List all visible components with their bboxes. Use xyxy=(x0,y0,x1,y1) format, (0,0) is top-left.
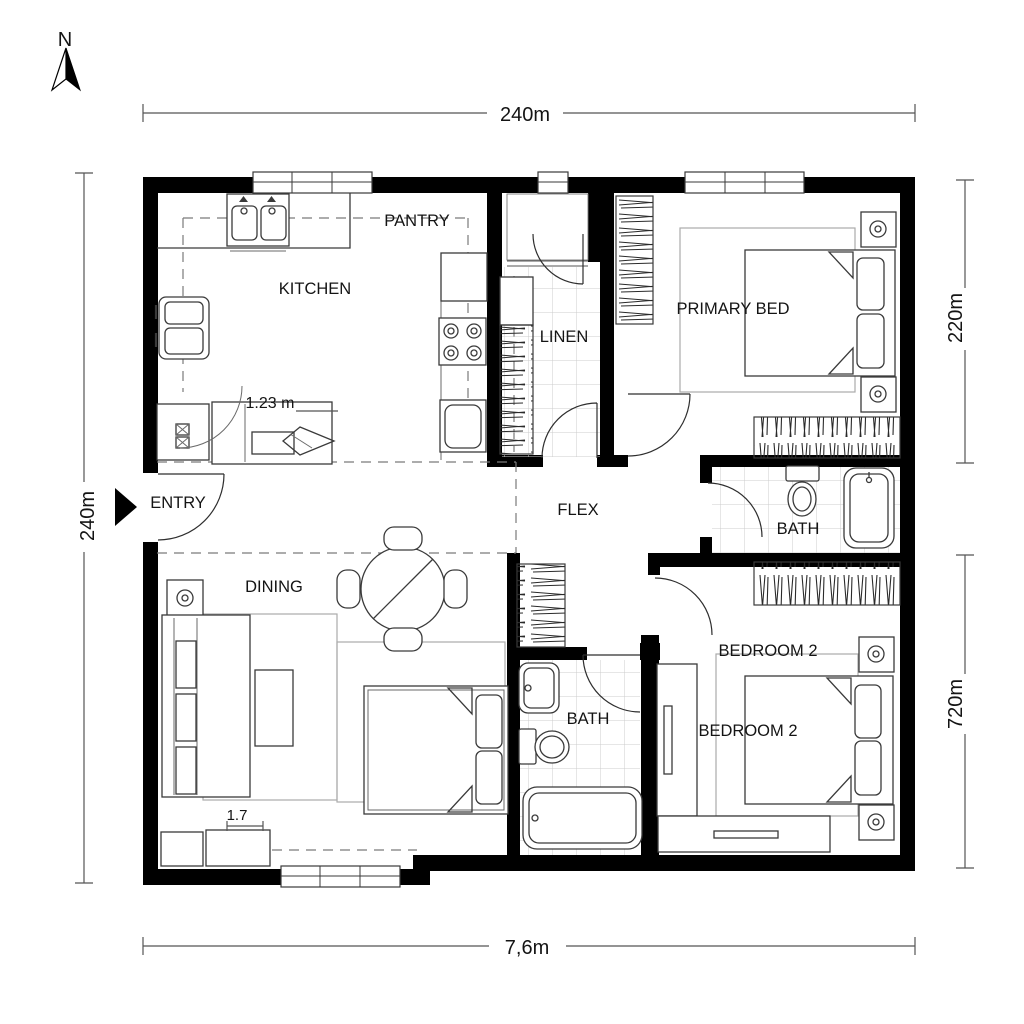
bed xyxy=(745,676,893,804)
nightstand xyxy=(861,212,896,247)
pantry-label: PANTRY xyxy=(384,212,449,230)
nightstand xyxy=(861,377,896,412)
nightstand xyxy=(859,805,894,840)
kitchen xyxy=(156,193,487,464)
dim-top: 240m xyxy=(143,104,915,126)
kitchen-tall-cabinet xyxy=(441,253,487,301)
dresser xyxy=(658,816,830,852)
bathtub xyxy=(523,787,642,849)
wall-hall-top xyxy=(597,455,628,467)
kitchen-sink xyxy=(227,194,289,251)
entry-label: ENTRY xyxy=(150,494,206,512)
dim-right-upper: 220m xyxy=(945,180,974,463)
wall-bedroom2-left xyxy=(641,635,659,869)
bedroom2-upper-label: BEDROOM 2 xyxy=(718,642,817,660)
window xyxy=(253,172,372,193)
hall-closet xyxy=(517,564,565,647)
dim-right-upper-label: 220m xyxy=(945,293,967,343)
dining-living xyxy=(161,527,508,866)
chair xyxy=(337,570,360,608)
north-arrow-icon xyxy=(66,48,80,90)
wall-bath-upper-left-a xyxy=(700,455,712,483)
vestibule xyxy=(507,194,588,266)
primary-wardrobe xyxy=(754,417,900,458)
wall-bedroom2-stub xyxy=(648,553,660,575)
primary-bed-label: PRIMARY BED xyxy=(676,300,789,318)
nightstand xyxy=(859,637,894,672)
toilet xyxy=(519,729,569,764)
window xyxy=(538,172,568,193)
vestibule-sill xyxy=(507,261,588,266)
bath-lower-label: BATH xyxy=(567,710,610,728)
bathtub xyxy=(844,468,894,548)
console-width-annotation: 1.7 xyxy=(227,807,248,824)
bedroom2-label: BEDROOM 2 xyxy=(698,722,797,740)
dining-label: DINING xyxy=(245,578,303,596)
dim-bottom-label: 7,6m xyxy=(505,937,549,959)
wall-linen-primary xyxy=(600,177,614,460)
floor-plan: N 240m 240m 220m 720m 7,6m xyxy=(0,0,1024,1024)
wardrobe xyxy=(657,664,697,816)
north-arrow-icon xyxy=(52,48,66,90)
wall-bath-lower-stub xyxy=(640,643,660,660)
bedroom2-wardrobe xyxy=(754,562,900,605)
bed xyxy=(364,686,508,814)
window xyxy=(685,172,804,193)
dim-right-lower: 720m xyxy=(945,555,974,868)
dining-table xyxy=(337,527,467,651)
wall-left-upper xyxy=(143,177,158,473)
linen-shelves xyxy=(500,325,533,454)
chair xyxy=(444,570,467,608)
washer xyxy=(157,404,209,460)
dim-bottom: 7,6m xyxy=(143,937,915,959)
fridge xyxy=(156,297,209,359)
dim-left-label: 240m xyxy=(77,491,99,541)
bedroom-2 xyxy=(657,637,894,852)
primary-door-arc xyxy=(628,394,690,456)
stove xyxy=(439,318,486,365)
dim-left: 240m xyxy=(75,173,99,883)
dim-right-lower-label: 720m xyxy=(945,679,967,729)
primary-closet xyxy=(616,196,653,324)
toilet xyxy=(786,466,819,516)
coffee-table xyxy=(255,670,293,746)
linen-label: LINEN xyxy=(540,328,589,346)
wall-left-lower xyxy=(143,542,158,885)
sofa xyxy=(162,615,250,797)
compass: N xyxy=(52,29,80,90)
wall-bottom-right xyxy=(425,855,915,871)
console-cabinet xyxy=(161,821,270,866)
chair xyxy=(384,628,422,651)
kitchen-label: KITCHEN xyxy=(279,280,351,298)
window xyxy=(281,866,400,887)
nightstand xyxy=(167,580,203,616)
flex-label: FLEX xyxy=(557,501,598,519)
linen-cabinet xyxy=(500,277,533,325)
entry-arrow-icon xyxy=(115,488,137,526)
wall-vestibule xyxy=(588,192,600,262)
bedroom2-door-arc xyxy=(655,578,712,635)
north-label: N xyxy=(58,29,72,51)
chair xyxy=(384,527,422,550)
wall-right xyxy=(900,177,915,871)
dim-top-label: 240m xyxy=(500,104,550,126)
bath-upper-label: BATH xyxy=(777,520,820,538)
wash-basin xyxy=(519,663,559,713)
clearance-annotation: 1.23 m xyxy=(246,395,295,412)
